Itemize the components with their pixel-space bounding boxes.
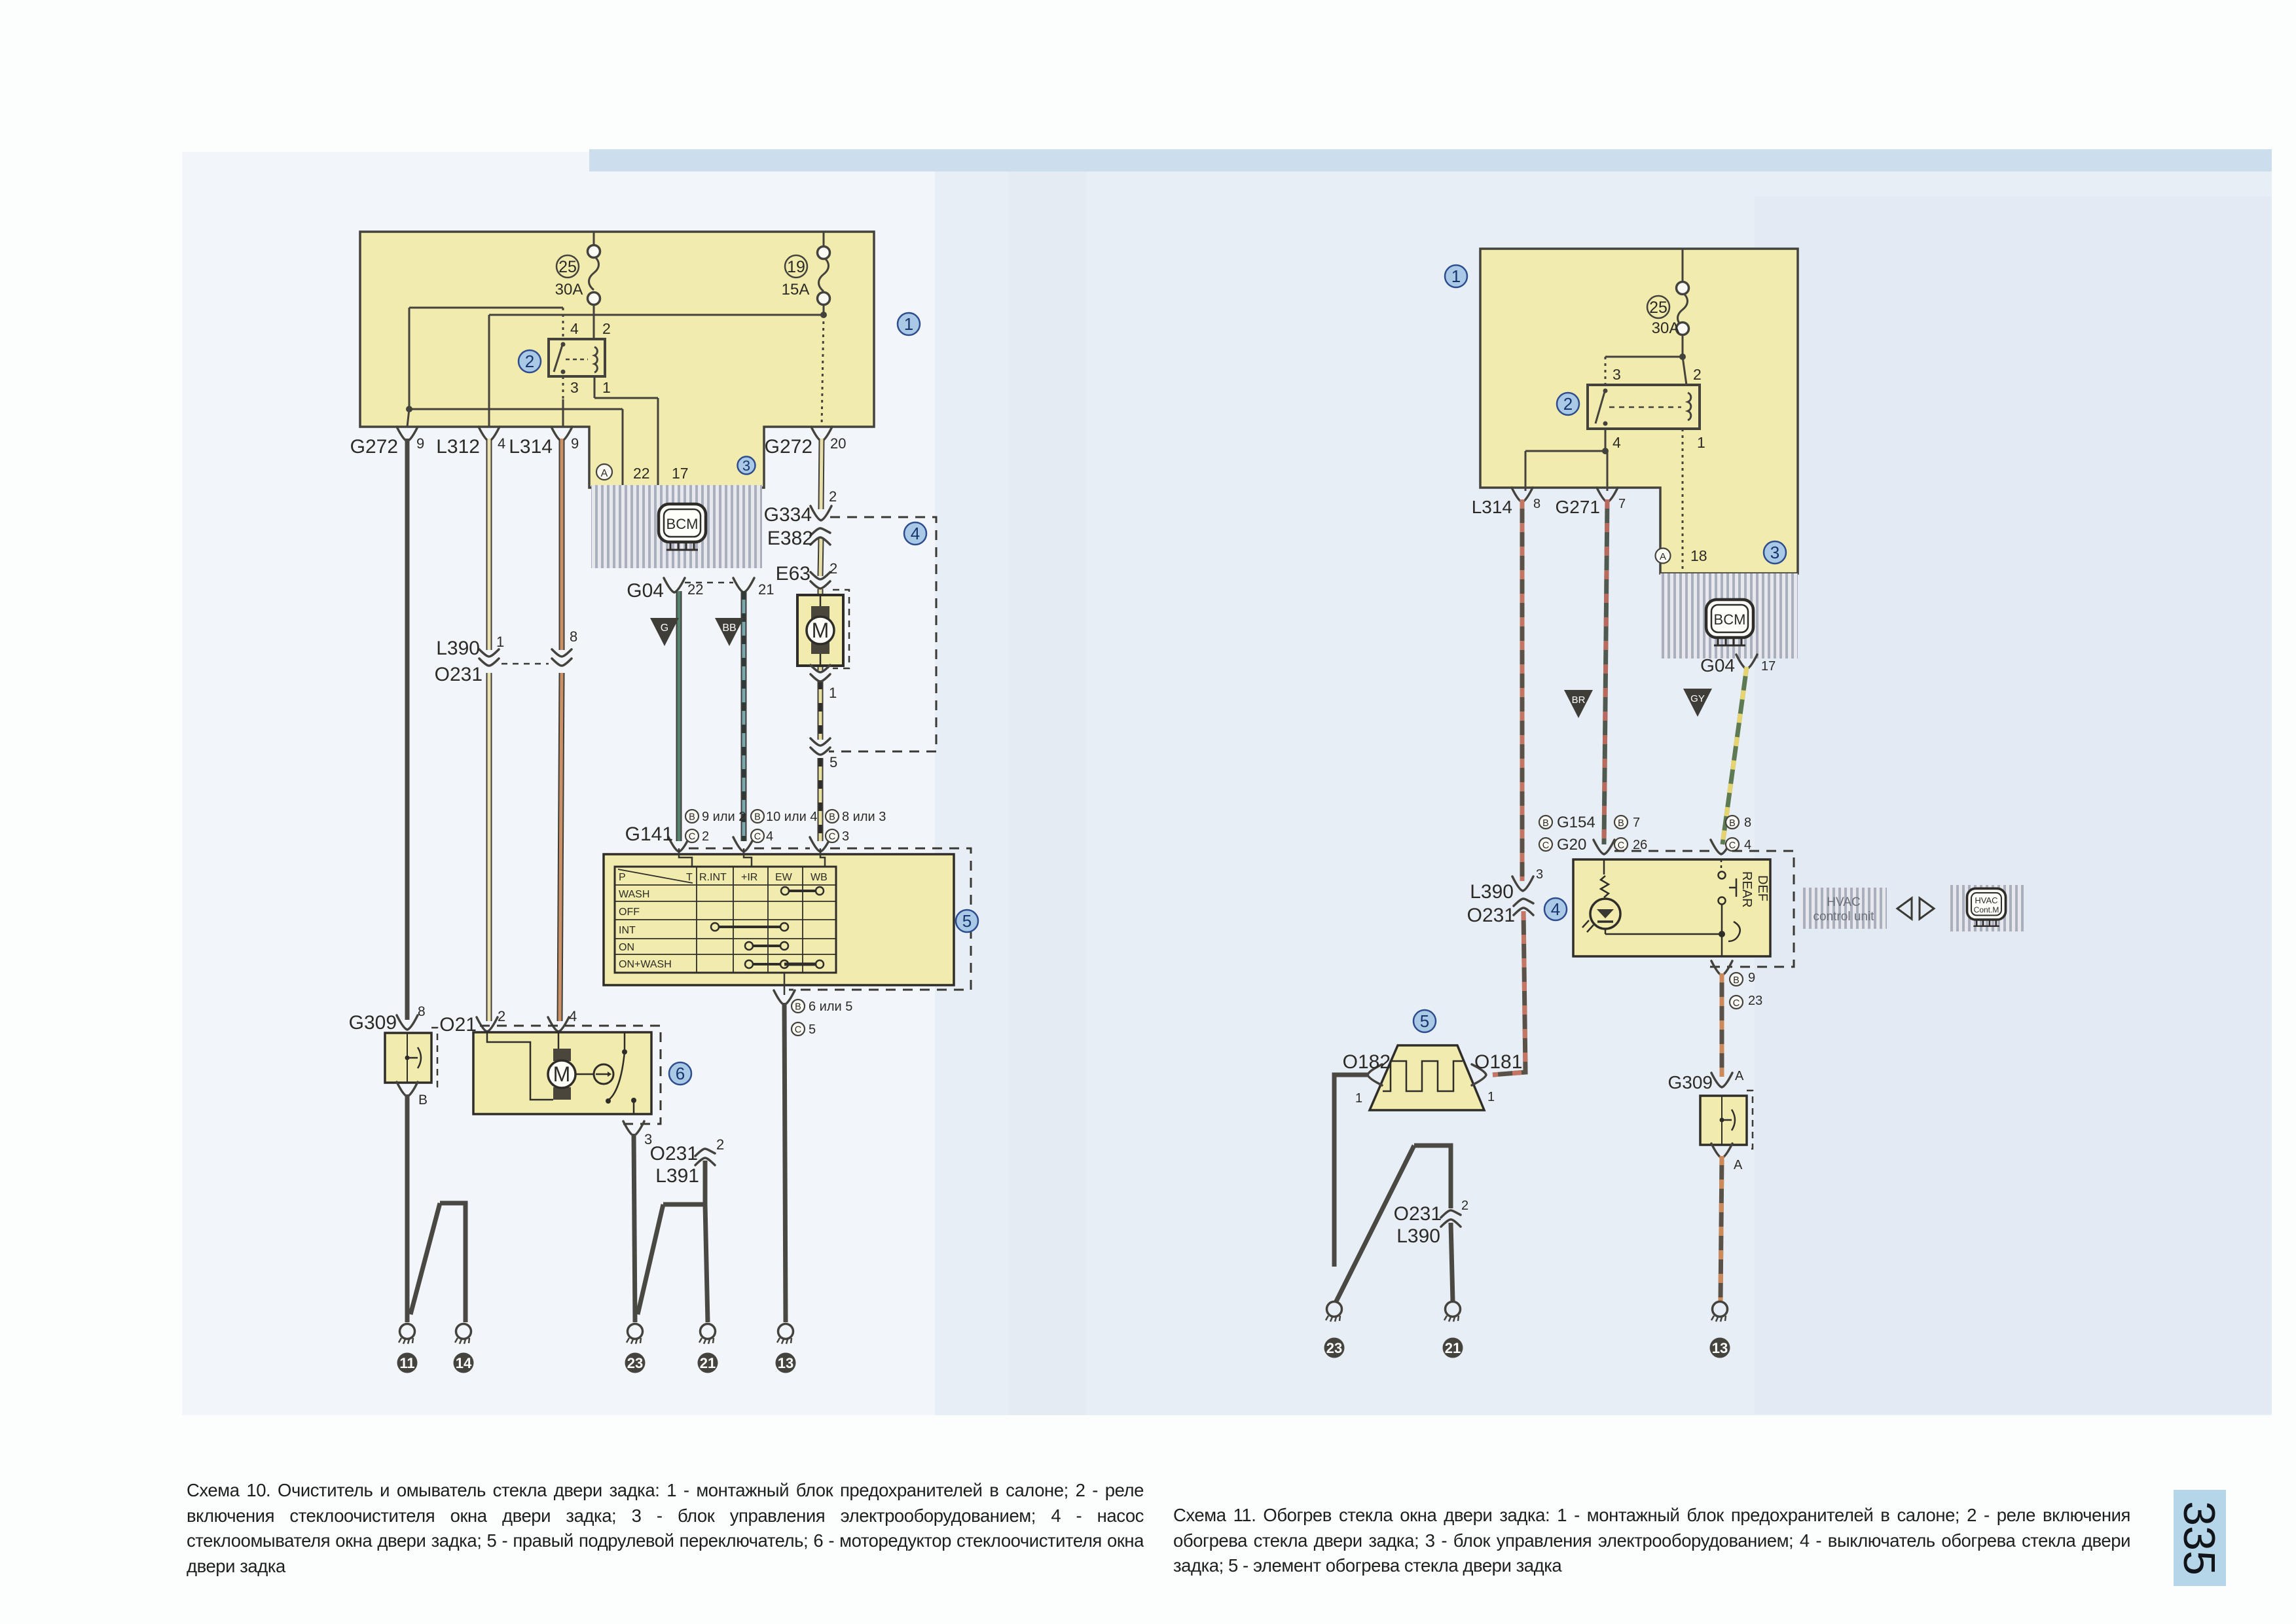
svg-text:BCM: BCM (666, 516, 699, 532)
svg-text:17: 17 (672, 465, 689, 482)
svg-text:3: 3 (570, 379, 579, 396)
svg-text:Cont.M: Cont.M (1974, 905, 1999, 914)
svg-text:5: 5 (829, 754, 837, 770)
svg-text:3: 3 (742, 458, 750, 474)
svg-text:13: 13 (1712, 1340, 1728, 1356)
svg-text:E63: E63 (776, 563, 811, 585)
svg-text:B: B (1618, 818, 1624, 829)
svg-text:B: B (754, 812, 761, 823)
svg-text:C: C (1618, 840, 1624, 851)
svg-text:+IR: +IR (741, 872, 757, 883)
svg-text:21: 21 (1445, 1340, 1461, 1356)
svg-text:T: T (686, 872, 693, 883)
svg-text:1: 1 (1487, 1090, 1495, 1104)
svg-text:2: 2 (1693, 366, 1702, 383)
svg-text:18: 18 (1690, 547, 1707, 564)
svg-text:21: 21 (700, 1355, 716, 1371)
svg-text:1: 1 (829, 685, 837, 701)
svg-text:L312: L312 (436, 436, 480, 458)
svg-text:O231: O231 (435, 664, 483, 685)
svg-text:2: 2 (602, 320, 611, 337)
svg-text:O182: O182 (1343, 1051, 1391, 1073)
svg-text:23: 23 (1326, 1340, 1342, 1356)
svg-text:INT: INT (619, 925, 636, 936)
svg-text:4: 4 (1551, 899, 1560, 919)
svg-text:8: 8 (1744, 816, 1751, 830)
svg-text:A: A (1660, 551, 1666, 562)
svg-text:C: C (754, 832, 761, 842)
svg-text:25: 25 (558, 258, 577, 276)
svg-text:10 или 4: 10 или 4 (766, 810, 818, 824)
svg-text:2: 2 (716, 1136, 724, 1153)
svg-text:G: G (661, 623, 668, 634)
svg-text:11: 11 (399, 1355, 414, 1371)
svg-text:1: 1 (602, 379, 611, 396)
svg-text:15A: 15A (782, 281, 810, 298)
svg-text:17: 17 (1761, 659, 1776, 674)
svg-text:G271: G271 (1556, 497, 1601, 517)
svg-text:L314: L314 (509, 436, 553, 458)
svg-text:M: M (812, 619, 829, 642)
svg-text:C: C (1729, 840, 1736, 851)
svg-text:L390: L390 (1470, 881, 1514, 903)
svg-text:3: 3 (1613, 366, 1621, 383)
svg-text:9 или 2: 9 или 2 (702, 810, 746, 824)
svg-text:3: 3 (1770, 543, 1779, 562)
svg-text:E382: E382 (767, 528, 813, 549)
svg-text:9: 9 (571, 435, 579, 452)
svg-text:HVAC: HVAC (1975, 895, 1997, 905)
svg-text:DEF: DEF (1755, 875, 1770, 901)
svg-text:GY: GY (1690, 693, 1705, 704)
svg-text:22: 22 (633, 465, 650, 482)
svg-text:G272: G272 (350, 436, 398, 458)
svg-text:G20: G20 (1557, 836, 1586, 854)
svg-text:BCM: BCM (1714, 611, 1746, 628)
svg-text:B: B (418, 1092, 428, 1108)
svg-text:O231: O231 (1467, 905, 1515, 926)
svg-text:4: 4 (1613, 434, 1621, 451)
svg-text:23: 23 (627, 1355, 643, 1371)
svg-text:2: 2 (498, 1008, 505, 1024)
svg-text:4: 4 (570, 320, 579, 337)
svg-text:3: 3 (1536, 867, 1543, 882)
svg-text:B: B (1729, 818, 1736, 829)
svg-text:19: 19 (787, 258, 805, 276)
svg-text:M: M (553, 1062, 571, 1086)
svg-text:C: C (1733, 998, 1740, 1009)
svg-text:21: 21 (758, 581, 774, 598)
svg-text:13: 13 (778, 1355, 793, 1371)
svg-text:REAR: REAR (1740, 871, 1754, 908)
svg-text:3: 3 (842, 829, 849, 844)
svg-text:4: 4 (766, 829, 773, 844)
svg-text:OFF: OFF (619, 907, 640, 918)
svg-text:C: C (829, 832, 835, 842)
svg-text:6: 6 (676, 1064, 685, 1083)
svg-text:G04: G04 (627, 580, 664, 602)
svg-text:2: 2 (702, 829, 709, 844)
svg-text:1: 1 (496, 634, 504, 650)
svg-text:L391: L391 (655, 1165, 699, 1187)
svg-text:14: 14 (456, 1355, 472, 1371)
svg-text:2: 2 (829, 560, 837, 577)
svg-text:WASH: WASH (619, 889, 649, 900)
svg-text:5: 5 (809, 1022, 816, 1037)
svg-text:B: B (829, 812, 835, 823)
svg-text:2: 2 (1563, 394, 1573, 414)
svg-text:4: 4 (498, 435, 505, 452)
svg-text:EW: EW (775, 872, 793, 883)
svg-text:control unit: control unit (1813, 910, 1875, 924)
svg-text:6 или 5: 6 или 5 (809, 1000, 852, 1014)
svg-text:2: 2 (525, 352, 534, 371)
svg-text:R.INT: R.INT (699, 872, 727, 883)
svg-text:5: 5 (1420, 1011, 1429, 1031)
svg-text:25: 25 (1649, 298, 1667, 317)
svg-text:ON: ON (619, 942, 634, 953)
svg-text:23: 23 (1748, 994, 1762, 1008)
svg-text:5: 5 (962, 911, 972, 931)
svg-text:1: 1 (1451, 266, 1461, 286)
svg-text:8: 8 (1533, 497, 1540, 511)
svg-text:P: P (619, 872, 626, 883)
svg-text:L390: L390 (436, 638, 480, 659)
svg-text:7: 7 (1618, 497, 1626, 511)
svg-text:WB: WB (811, 872, 828, 883)
svg-text:9: 9 (416, 435, 424, 452)
svg-text:HVAC: HVAC (1827, 895, 1860, 909)
svg-text:BR: BR (1572, 695, 1586, 706)
svg-text:ON+WASH: ON+WASH (619, 959, 672, 970)
svg-text:C: C (1542, 840, 1549, 851)
svg-text:G141: G141 (625, 823, 673, 845)
svg-text:O181: O181 (1474, 1051, 1522, 1073)
svg-text:B: B (1733, 975, 1740, 986)
svg-text:8: 8 (570, 628, 577, 645)
svg-text:G154: G154 (1557, 814, 1595, 831)
svg-text:O21: O21 (439, 1014, 477, 1036)
svg-text:9: 9 (1748, 971, 1755, 985)
svg-text:2: 2 (1461, 1199, 1468, 1213)
svg-text:L314: L314 (1472, 497, 1512, 517)
svg-text:1: 1 (904, 314, 913, 334)
svg-text:C: C (689, 832, 695, 842)
svg-text:A: A (601, 468, 608, 479)
svg-text:B: B (795, 1002, 801, 1013)
svg-text:7: 7 (1633, 816, 1640, 830)
svg-text:2: 2 (829, 488, 837, 505)
svg-text:4: 4 (569, 1008, 577, 1024)
svg-text:G272: G272 (765, 436, 812, 458)
svg-text:B: B (1542, 818, 1549, 829)
svg-text:G334: G334 (764, 504, 812, 526)
svg-text:4: 4 (911, 524, 920, 543)
svg-text:30A: 30A (1652, 319, 1680, 337)
svg-text:30A: 30A (555, 281, 583, 298)
svg-text:G309: G309 (349, 1012, 397, 1034)
svg-text:22: 22 (687, 581, 703, 598)
svg-text:O231: O231 (650, 1143, 698, 1164)
svg-text:A: A (1734, 1158, 1743, 1172)
svg-text:1: 1 (1697, 434, 1705, 451)
svg-text:1: 1 (1355, 1091, 1362, 1106)
svg-text:20: 20 (830, 435, 846, 452)
svg-text:8: 8 (418, 1004, 426, 1019)
svg-text:O231: O231 (1394, 1203, 1442, 1225)
svg-text:A: A (1735, 1069, 1744, 1083)
svg-text:BB: BB (722, 623, 736, 634)
svg-text:8 или 3: 8 или 3 (842, 810, 886, 824)
svg-text:B: B (689, 812, 695, 823)
svg-text:L390: L390 (1396, 1225, 1440, 1247)
svg-text:G04: G04 (1700, 655, 1735, 676)
svg-text:C: C (795, 1025, 801, 1036)
svg-text:G309: G309 (1668, 1072, 1713, 1092)
